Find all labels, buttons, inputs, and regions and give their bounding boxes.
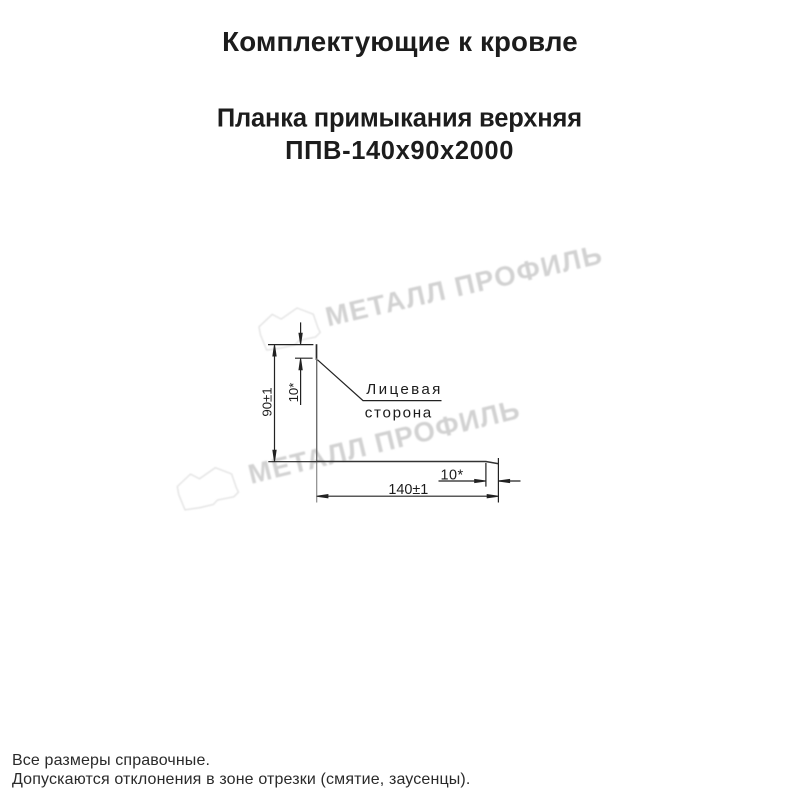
svg-text:ППВ-140х90х2000: ППВ-140х90х2000 [285,137,514,165]
svg-text:90±1: 90±1 [259,387,274,416]
svg-text:Лицевая: Лицевая [366,381,442,398]
svg-text:10*: 10* [441,467,464,483]
svg-text:140±1: 140±1 [388,482,428,498]
svg-text:Планка примыкания верхняя: Планка примыкания верхняя [217,104,582,132]
svg-text:Допускаются отклонения в зоне: Допускаются отклонения в зоне отрезки (с… [12,771,471,788]
svg-text:сторона: сторона [365,405,433,422]
svg-text:10*: 10* [286,383,301,403]
svg-text:Все размеры справочные.: Все размеры справочные. [12,752,210,769]
svg-text:Комплектующие к кровле: Комплектующие к кровле [222,26,578,57]
